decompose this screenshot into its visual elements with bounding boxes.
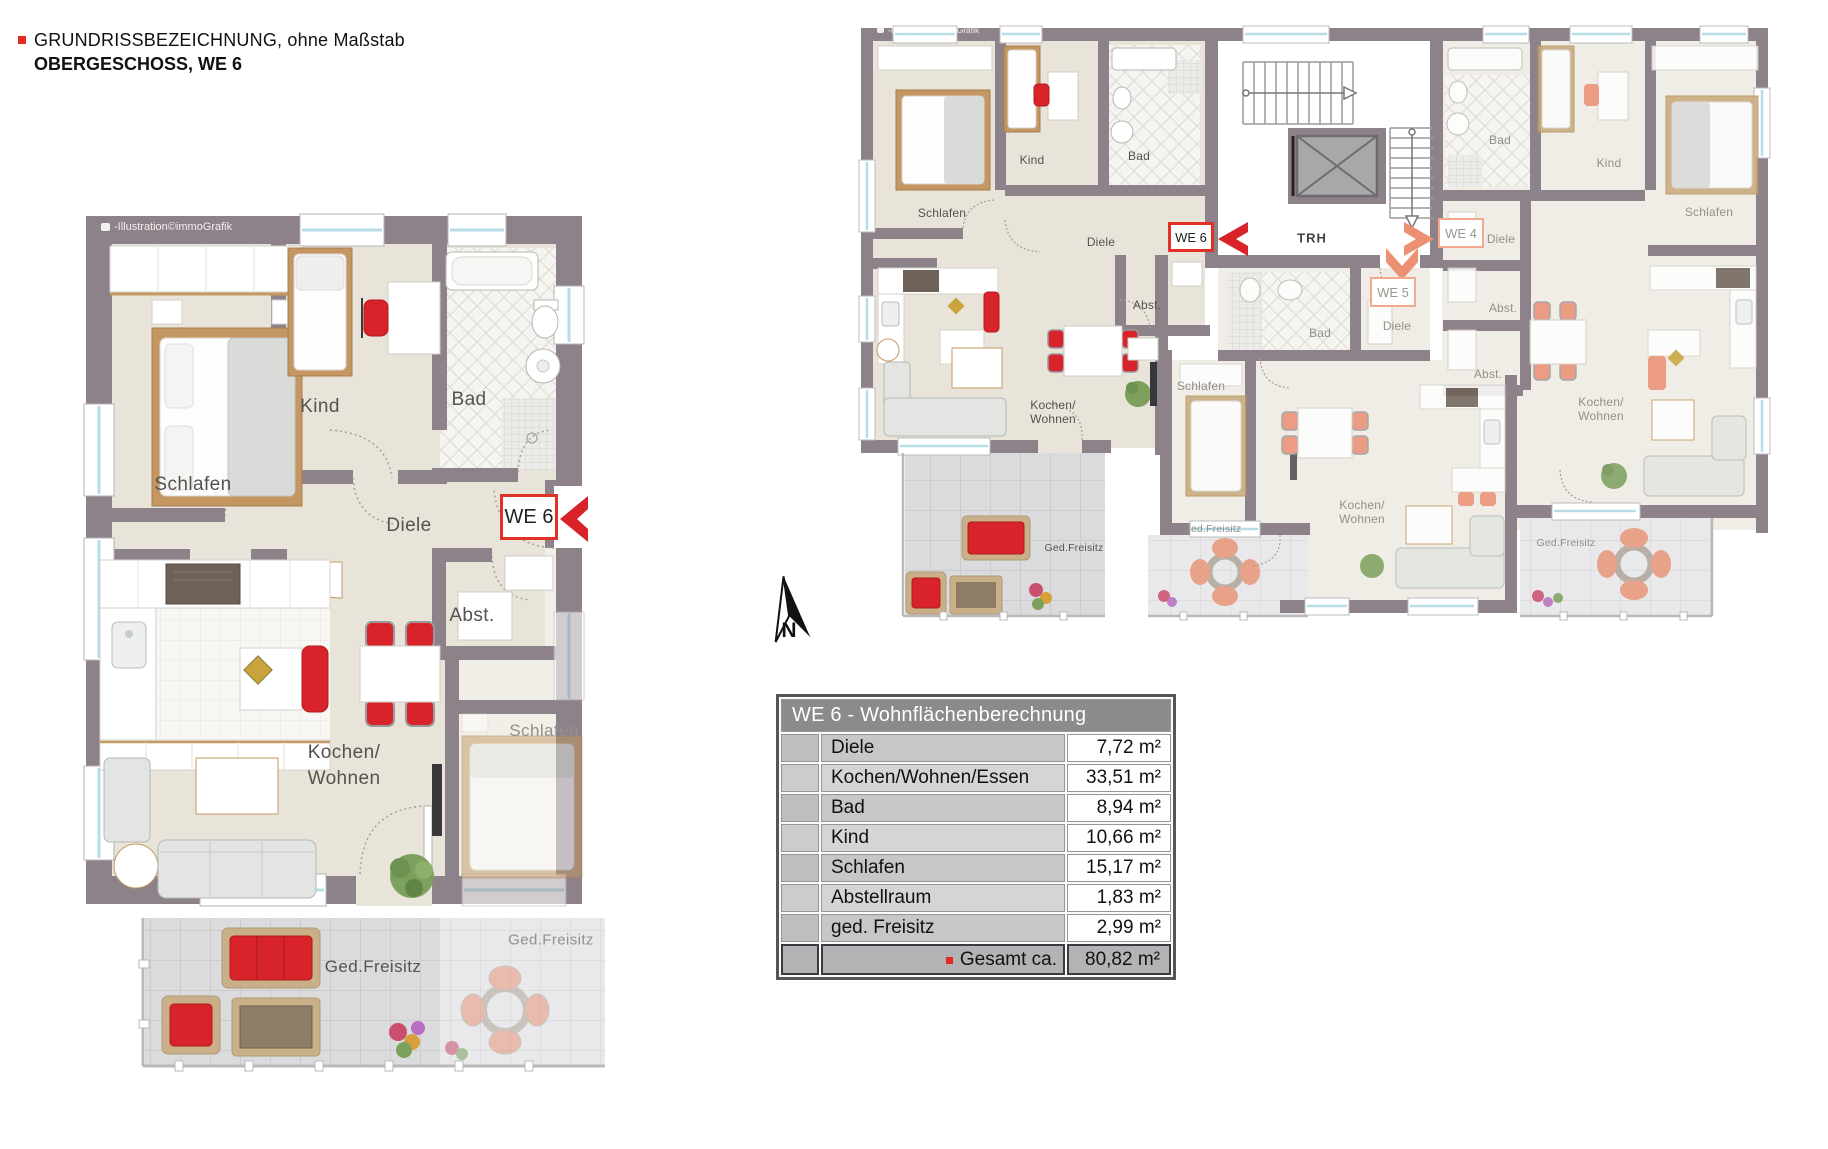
- table-row-label: Abstellraum: [821, 884, 1065, 912]
- area-table-title: WE 6 - Wohnflächenberechnung: [781, 699, 1171, 732]
- ov-we4-abst2: Abst.: [1474, 367, 1502, 381]
- ov-we4-schlafen: Schlafen: [1685, 205, 1733, 219]
- sheet-header: GRUNDRISSBEZEICHNUNG, ohne Maßstab OBERG…: [18, 30, 405, 75]
- area-table: WE 6 - Wohnflächenberechnung Diele7,72 m…: [776, 694, 1176, 980]
- neighbor-terrace-label: Ged.Freisitz: [508, 932, 594, 949]
- table-total-value: 80,82 m²: [1067, 944, 1171, 975]
- unit-tag-we6-detail: WE 6: [500, 494, 558, 540]
- watermark: -Illustration©immoGrafik: [877, 25, 979, 35]
- immografik-icon: [877, 27, 884, 33]
- unit-tag-we6-overview: WE 6: [1168, 222, 1214, 252]
- immografik-icon: [101, 223, 110, 231]
- table-row-label: ged. Freisitz: [821, 914, 1065, 942]
- ov-we6-kochen: Kochen/: [1030, 398, 1075, 412]
- room-label-schlafen: Schlafen: [154, 474, 231, 496]
- room-label-abst: Abst.: [449, 605, 494, 627]
- ov-we6-schlafen: Schlafen: [918, 206, 966, 220]
- ov-we4-abst1: Abst.: [1489, 301, 1517, 315]
- table-row-label: Bad: [821, 794, 1065, 822]
- ov-we5-freisitz: Ged.Freisitz: [1183, 523, 1242, 535]
- table-row-value: 2,99 m²: [1067, 914, 1171, 942]
- ov-we5-kochen: Kochen/: [1339, 498, 1384, 512]
- table-total-label: Gesamt ca.: [821, 944, 1065, 975]
- sheet-title: GRUNDRISSBEZEICHNUNG, ohne Maßstab: [34, 30, 405, 51]
- room-label-bad: Bad: [451, 389, 486, 411]
- stairwell-label: TRH: [1297, 231, 1327, 246]
- room-label-wohnen: Wohnen: [308, 768, 381, 790]
- table-row-value: 1,83 m²: [1067, 884, 1171, 912]
- red-bullet-icon: [946, 957, 953, 964]
- ov-we4-diele: Diele: [1487, 232, 1515, 246]
- sheet-subtitle: OBERGESCHOSS, WE 6: [34, 54, 405, 75]
- north-label: N: [781, 619, 796, 643]
- ov-we4-wohnen: Wohnen: [1578, 409, 1624, 423]
- ov-we6-wohnen: Wohnen: [1030, 412, 1076, 426]
- ov-we6-abst: Abst.: [1133, 298, 1161, 312]
- ov-we6-bad: Bad: [1128, 149, 1150, 163]
- watermark: -Illustration©immoGrafik: [101, 221, 232, 233]
- ov-we6-freisitz: Ged.Freisitz: [1045, 542, 1104, 554]
- table-row-label: Kochen/Wohnen/Essen: [821, 764, 1065, 792]
- ov-we6-kind: Kind: [1020, 153, 1045, 167]
- table-row-label: Schlafen: [821, 854, 1065, 882]
- ov-we5-diele: Diele: [1383, 319, 1411, 333]
- ov-we4-bad: Bad: [1489, 133, 1511, 147]
- label-layer: GRUNDRISSBEZEICHNUNG, ohne Maßstab OBERG…: [0, 0, 1828, 1149]
- ov-we6-diele: Diele: [1087, 235, 1115, 249]
- table-row-label: Diele: [821, 734, 1065, 762]
- table-row-value: 10,66 m²: [1067, 824, 1171, 852]
- table-row-label: Kind: [821, 824, 1065, 852]
- table-row-value: 8,94 m²: [1067, 794, 1171, 822]
- room-label-kochen: Kochen/: [308, 742, 381, 764]
- ov-we4-kind: Kind: [1597, 156, 1622, 170]
- terrace-label: Ged.Freisitz: [325, 957, 421, 977]
- unit-tag-we5: WE 5: [1370, 277, 1416, 307]
- red-bullet-icon: [18, 36, 26, 44]
- table-row-value: 33,51 m²: [1067, 764, 1171, 792]
- table-row-value: 15,17 m²: [1067, 854, 1171, 882]
- unit-tag-we4: WE 4: [1438, 218, 1484, 248]
- room-label-kind: Kind: [300, 396, 340, 418]
- ov-we5-wohnen: Wohnen: [1339, 512, 1385, 526]
- ov-we5-bad: Bad: [1309, 326, 1331, 340]
- table-row-value: 7,72 m²: [1067, 734, 1171, 762]
- neighbor-room-label: Schlafen: [509, 721, 578, 741]
- ov-we4-freisitz: Ged.Freisitz: [1537, 537, 1596, 549]
- room-label-diele: Diele: [386, 515, 431, 537]
- ov-we4-kochen: Kochen/: [1578, 395, 1623, 409]
- ov-we5-schlafen: Schlafen: [1177, 379, 1225, 393]
- floorplan-sheet: GRUNDRISSBEZEICHNUNG, ohne Maßstab OBERG…: [0, 0, 1828, 1149]
